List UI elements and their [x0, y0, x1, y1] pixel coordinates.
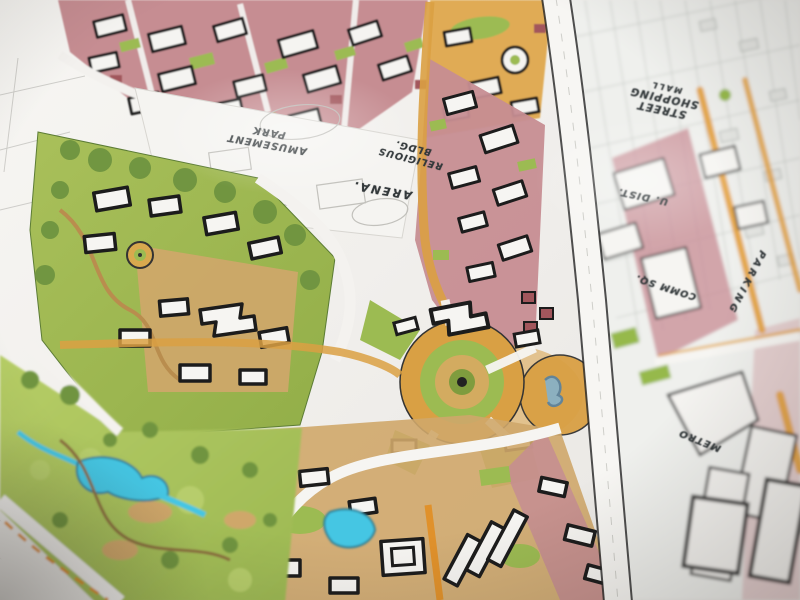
photo-of-master-plan: AMUSEMENT PARK RELIGIOUS BLDG. ARENA. ST… [0, 0, 800, 600]
